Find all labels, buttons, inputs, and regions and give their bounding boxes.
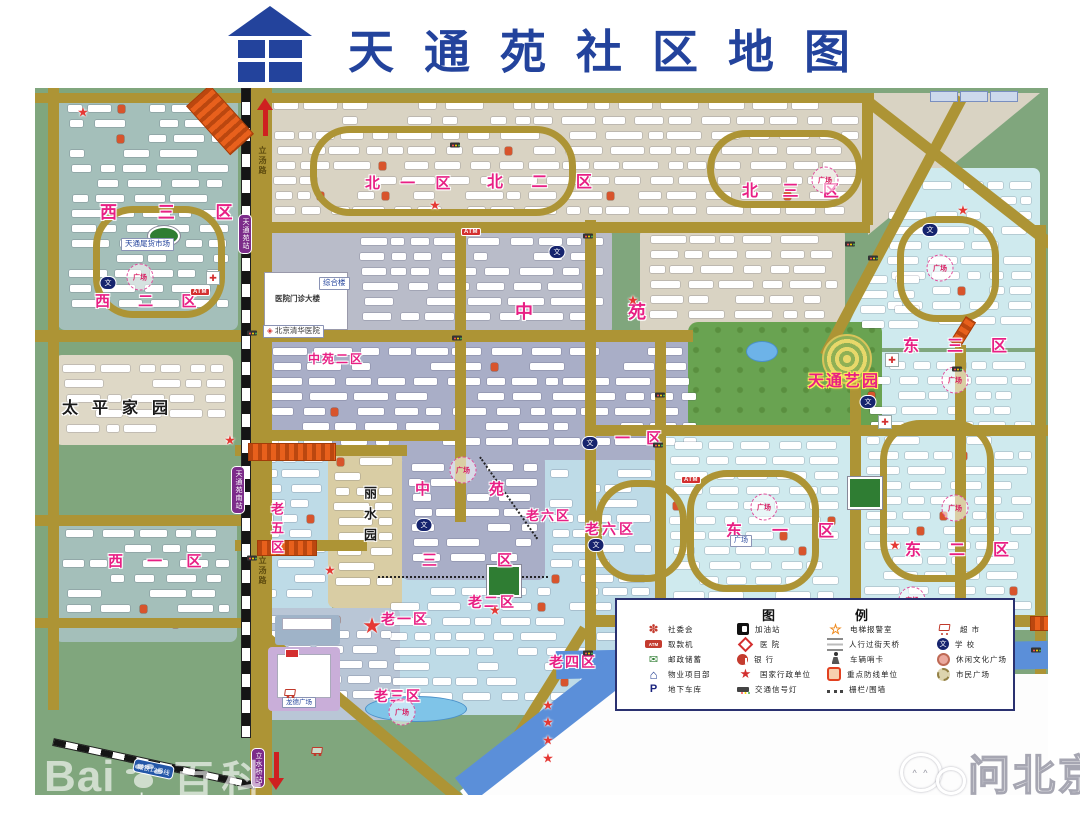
school-marker: 文 <box>922 223 939 237</box>
hospital-cross-marker <box>878 415 892 429</box>
district-label-zy2: 中苑二区 <box>308 350 364 367</box>
landmark-dong-plaza: 广场 <box>730 535 752 547</box>
legend-item-label: 物业项目部 <box>668 669 711 680</box>
wenbeijing-watermark: ^ ^ 问北京 <box>900 742 1080 803</box>
road-name-litang: 立汤路 <box>257 146 268 176</box>
longde-plaza-block: 龙德广场 <box>268 647 340 711</box>
legend-item: ATM取款机 <box>645 637 694 651</box>
government-star-marker: ★ <box>889 539 901 552</box>
elevator-alarm-star-icon <box>827 622 844 636</box>
legend-item: 人行过街天桥 <box>827 637 900 651</box>
legend-item-label: 超 市 <box>960 624 980 635</box>
government-star-marker: ★ <box>542 752 554 765</box>
gov-star-icon <box>737 667 754 681</box>
baidu-baike-watermark: Bai du 百科 <box>44 748 269 806</box>
traffic-light-marker <box>247 331 257 336</box>
legend-item: 医 院 <box>737 637 780 651</box>
legend-item-label: 取款机 <box>668 639 694 650</box>
south-direction-arrow <box>268 752 284 790</box>
traffic-light-marker <box>653 443 663 448</box>
supermarket-cart-marker <box>311 746 324 756</box>
legend-item-label: 人行过街天桥 <box>849 639 900 650</box>
legend-item: 文学 校 <box>937 637 975 651</box>
school-marker: 文 <box>582 436 599 450</box>
map-header: 天通苑社区地图 <box>0 0 1080 88</box>
district-label-lishui: 丽水园 <box>360 486 379 549</box>
plaza-marker: 广场 <box>942 495 969 522</box>
legend-item: 银 行 <box>737 652 774 666</box>
traffic-light-marker <box>868 256 878 261</box>
legend-item: 休闲文化广场 <box>937 652 1007 666</box>
government-star-marker: ★ <box>542 716 554 729</box>
page-title: 天通苑社区地图 <box>348 16 880 82</box>
arrow-stem <box>274 752 279 778</box>
district-label-east2: 东二区 <box>905 536 1037 560</box>
tsinghua-hospital-label: 北京清华医院 <box>275 326 320 335</box>
traffic-light-marker <box>655 393 665 398</box>
supermarket-cart-marker <box>284 688 297 698</box>
legend-item-label: 医 院 <box>760 639 780 650</box>
landmark-longde: 龙德广场 <box>282 697 316 708</box>
redtag-marker <box>285 649 299 658</box>
government-star-marker-large: ★ <box>362 615 382 637</box>
district-label-zy3a: 中苑 <box>415 478 563 499</box>
overpass-lines-icon <box>827 638 843 651</box>
legend-item: 社委会 <box>645 622 694 636</box>
wenbeijing-text: 问北京 <box>968 742 1080 803</box>
legend-item: 国家行政单位 <box>737 667 811 681</box>
post-savings-icon <box>645 652 662 666</box>
house-logo-icon <box>228 6 312 82</box>
bank-circle-icon <box>737 654 748 665</box>
plaza-marker: 广场 <box>450 457 477 484</box>
hospital-cross-marker <box>885 353 899 367</box>
parking-p-icon <box>645 682 662 696</box>
legend-item: 电梯报警室 <box>827 622 893 636</box>
legend-item-label: 栅栏/围墙 <box>849 684 886 695</box>
district-label-taiping: 太平家园 <box>62 394 182 418</box>
district-label-lao5: 老五区 <box>267 502 286 559</box>
park-label-yiyuan: 天通艺园 <box>808 367 880 391</box>
legend-item-label: 休闲文化广场 <box>956 654 1007 665</box>
legend-item: 车辆哨卡 <box>827 652 884 666</box>
map-legend: 图例 社委会ATM取款机邮政储蓄物业项目部地下车库加油站医 院银 行国家行政单位… <box>615 598 1015 711</box>
info-box <box>930 91 958 102</box>
government-star-marker: ★ <box>957 204 969 217</box>
government-star-marker: ★ <box>542 699 554 712</box>
legend-item: 交通信号灯 <box>737 682 798 696</box>
chat-bubble-icon <box>936 767 966 795</box>
district-label-north1: 北 一 区 <box>365 172 458 193</box>
legend-item-label: 市民广场 <box>956 669 990 680</box>
school-marker: 文 <box>416 518 433 532</box>
gas-station-icon <box>737 623 749 635</box>
legend-item-label: 社委会 <box>668 624 694 635</box>
traffic-light-marker <box>583 651 593 656</box>
legend-item-label: 加油站 <box>755 624 781 635</box>
legend-item: 邮政储蓄 <box>645 652 702 666</box>
plaza-marker: 广场 <box>127 264 154 291</box>
baike-watermark-text: 百科 <box>173 748 269 806</box>
hospital-diamond-icon <box>737 637 754 651</box>
shopping-street-block <box>275 615 340 645</box>
arrow-head <box>257 98 273 110</box>
plaza-marker: 广场 <box>751 494 778 521</box>
baidu-watermark-text: Bai <box>44 752 115 802</box>
info-box <box>960 91 988 102</box>
legend-item-label: 国家行政单位 <box>760 669 811 680</box>
district-label-east3: 东三区 <box>903 332 1035 356</box>
hospital-diamond-icon: ◈ <box>267 326 275 335</box>
district-label-west3: 西 三 区 <box>100 198 250 223</box>
legend-item: 物业项目部 <box>645 667 711 681</box>
school-marker: 文 <box>100 276 117 290</box>
district-label-north2: 北 二 区 <box>487 168 604 192</box>
government-star-marker: ★ <box>224 434 236 447</box>
legend-item: 加油站 <box>737 622 781 636</box>
key-unit-box-icon <box>827 667 841 681</box>
traffic-light-marker <box>583 234 593 239</box>
atm-marker: ATM <box>190 288 210 296</box>
district-label-lao6b: 老六区 <box>585 519 636 539</box>
station-tag-tiantongyuan-south: 天通苑南站 <box>231 466 245 514</box>
plaza-marker: 广场 <box>389 699 416 726</box>
district-label-lao6a: 老六区 <box>526 505 571 524</box>
legend-item-label: 邮政储蓄 <box>668 654 702 665</box>
traffic-light-marker <box>247 556 257 561</box>
traffic-light-marker <box>1031 648 1041 653</box>
atm-tag-icon: ATM <box>645 640 662 648</box>
fence-dots-icon <box>827 690 843 693</box>
arrow-stem <box>263 110 268 136</box>
chat-bubble-icon: ^ ^ <box>900 753 942 792</box>
district-label-zy3b: 三区 <box>422 549 572 570</box>
committee-flower-icon <box>645 622 662 636</box>
plaza-marker: 广场 <box>812 167 839 194</box>
district-label-lao1: 老一区 <box>381 609 429 629</box>
legend-item: 栅栏/围墙 <box>827 682 886 696</box>
house-roof-icon <box>228 6 312 36</box>
arrow-head <box>268 778 284 790</box>
culture-plaza-icon <box>937 653 950 666</box>
atm-marker: ATM <box>681 476 701 484</box>
government-star-marker: ★ <box>429 199 441 212</box>
traffic-light-marker <box>952 367 962 372</box>
page: 天通苑社区地图 <box>0 0 1080 824</box>
school-marker: 文 <box>860 395 877 409</box>
baidu-du-text: du <box>135 790 151 805</box>
info-box <box>990 91 1018 102</box>
legend-item-label: 车辆哨卡 <box>850 654 884 665</box>
traffic-light-marker <box>845 242 855 247</box>
road-name-litang: 立汤路 <box>257 556 268 586</box>
plaza-marker: 广场 <box>927 255 954 282</box>
district-label-west1: 西 一 区 <box>108 550 211 571</box>
traffic-light-marker <box>450 143 460 148</box>
government-star-marker: ★ <box>77 106 89 119</box>
government-star-marker: ★ <box>489 604 501 617</box>
legend-item-label: 电梯报警室 <box>850 624 893 635</box>
school-marker: 文 <box>588 538 605 552</box>
legend-item-label: 地下车库 <box>668 684 702 695</box>
school-marker: 文 <box>549 245 566 259</box>
landmark-weihuo-market: 天通尾货市场 <box>121 238 174 251</box>
atm-marker: ATM <box>461 228 481 236</box>
property-house-icon <box>645 667 662 681</box>
government-star-marker: ★ <box>542 734 554 747</box>
government-star-marker: ★ <box>627 294 639 307</box>
landmark-hospital-main: 医院门诊大楼 <box>272 294 323 305</box>
legend-item-label: 交通信号灯 <box>755 684 798 695</box>
hospital-cross-marker <box>206 271 220 285</box>
government-star-marker: ★ <box>324 564 336 577</box>
station-tag-tiantongyuan: 天通苑站 <box>238 214 252 254</box>
legend-item-label: 重点防线单位 <box>847 669 898 680</box>
house-window-icon <box>238 40 302 82</box>
north-direction-arrow <box>257 98 273 136</box>
civic-plaza-icon <box>937 668 950 681</box>
landmark-tsinghua-hospital: ◈ 北京清华医院 <box>263 325 324 338</box>
legend-item: 地下车库 <box>645 682 702 696</box>
legend-item-label: 银 行 <box>754 654 774 665</box>
traffic-light-marker <box>452 336 462 341</box>
landmark-zonghelou: 综合楼 <box>319 277 350 290</box>
shopping-street-building <box>283 619 331 629</box>
legend-item: 超 市 <box>937 622 980 636</box>
supermarket-cart-icon <box>937 622 954 636</box>
school-dot-icon: 文 <box>937 638 949 650</box>
legend-item-label: 学 校 <box>955 639 975 650</box>
traffic-light-icon <box>737 687 749 692</box>
legend-item: 重点防线单位 <box>827 667 898 681</box>
vehicle-checkpoint-icon <box>827 652 844 666</box>
legend-item: 市民广场 <box>937 667 990 681</box>
baidu-paw-icon: du <box>121 755 165 799</box>
